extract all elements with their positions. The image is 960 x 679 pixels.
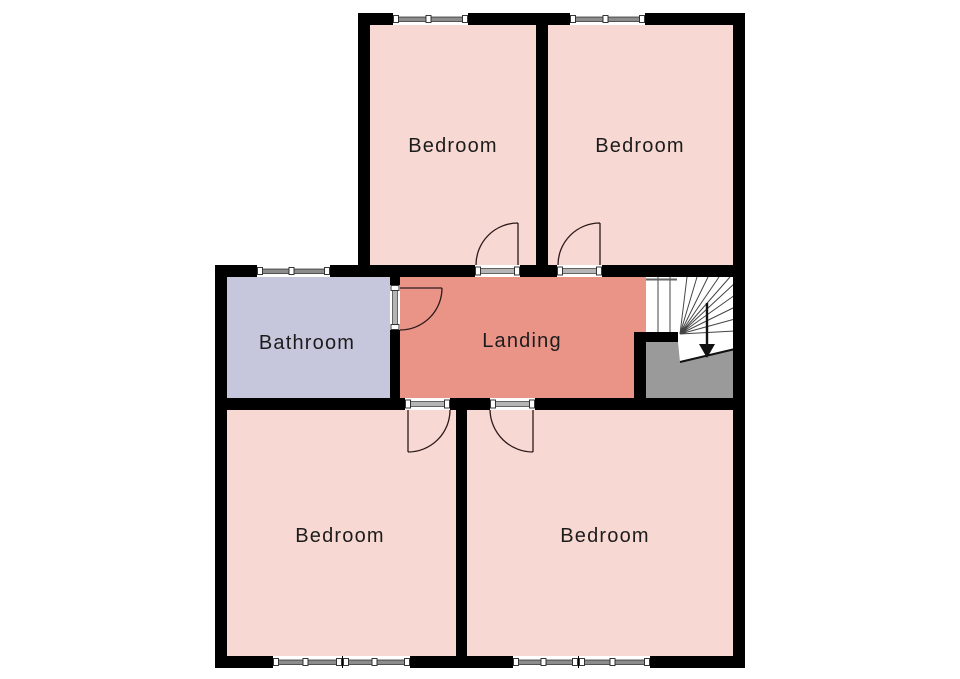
label-bedroom-bottom-left: Bedroom xyxy=(295,525,385,547)
window-bedroom-top-left xyxy=(393,13,468,25)
label-bedroom-bottom-right: Bedroom xyxy=(560,525,650,547)
wall-top-section-left xyxy=(358,13,370,277)
wall-bottom-bedrooms-divider xyxy=(456,398,467,668)
label-bedroom-top-right: Bedroom xyxy=(595,135,685,157)
wall-left xyxy=(215,265,227,668)
label-bedroom-top-left: Bedroom xyxy=(408,135,498,157)
label-landing: Landing xyxy=(482,330,562,352)
window-bedroom-top-right xyxy=(570,13,645,25)
window-bedroom-bottom-right-b xyxy=(579,656,650,668)
wall-top-bedrooms-divider xyxy=(536,13,548,277)
floor-plan: Bedroom Bedroom Bathroom Landing Bedroom… xyxy=(0,0,960,679)
wall-right xyxy=(733,13,745,668)
label-bathroom: Bathroom xyxy=(259,332,355,354)
wall-stairwell-horizontal xyxy=(634,332,678,342)
wall-stairwell-vertical xyxy=(634,332,646,410)
wall-middle-lower xyxy=(215,398,745,410)
window-bedroom-bottom-right-a xyxy=(513,656,578,668)
window-bedroom-bottom-left-b xyxy=(343,656,410,668)
window-bedroom-bottom-left-a xyxy=(273,656,342,668)
window-bathroom xyxy=(257,265,330,277)
